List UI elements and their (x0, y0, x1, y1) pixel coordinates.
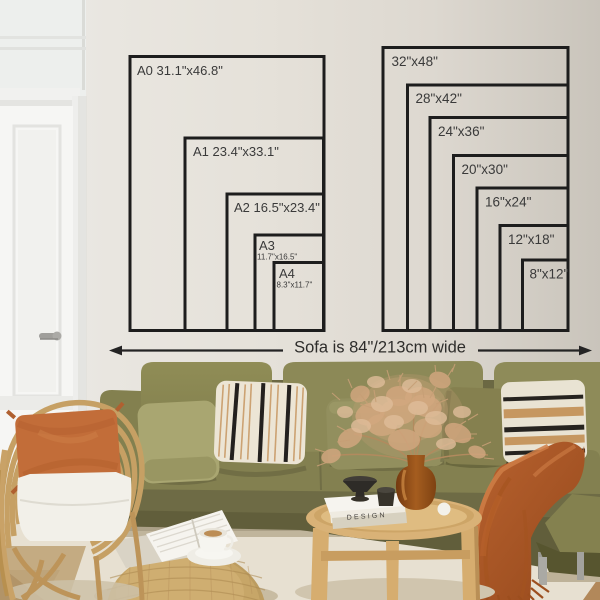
svg-text:11.7"x16.5": 11.7"x16.5" (257, 253, 297, 262)
svg-text:A3: A3 (259, 238, 275, 253)
svg-text:8.3"x11.7": 8.3"x11.7" (277, 281, 313, 290)
svg-text:32"x48": 32"x48" (392, 54, 439, 69)
svg-text:20"x30": 20"x30" (462, 162, 509, 177)
svg-text:A0 31.1"x46.8": A0 31.1"x46.8" (137, 63, 223, 78)
svg-text:8"x12": 8"x12" (530, 267, 569, 282)
svg-text:24"x36": 24"x36" (438, 124, 485, 139)
svg-text:A4: A4 (279, 266, 295, 281)
svg-text:Sofa is 84"/213cm wide: Sofa is 84"/213cm wide (294, 339, 466, 357)
svg-text:A2 16.5"x23.4": A2 16.5"x23.4" (234, 200, 320, 215)
svg-text:A1 23.4"x33.1": A1 23.4"x33.1" (193, 144, 279, 159)
svg-text:12"x18": 12"x18" (508, 232, 555, 247)
svg-text:28"x42": 28"x42" (416, 91, 463, 106)
svg-text:16"x24": 16"x24" (485, 195, 532, 210)
